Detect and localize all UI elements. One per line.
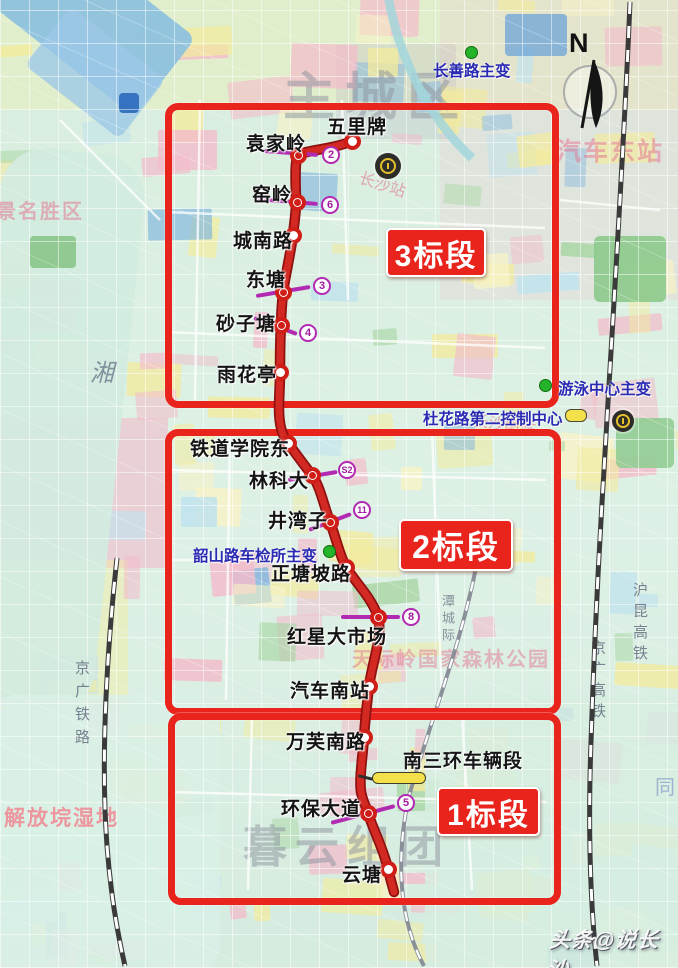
compass: N (552, 28, 636, 132)
section-tag-2: 2标段 (399, 519, 513, 571)
section-tag-3: 3标段 (386, 228, 486, 277)
compass-needle-icon (552, 28, 636, 132)
compass-n-label: N (569, 28, 589, 59)
credit-watermark: 头条@说长沙 (545, 924, 678, 968)
section-tag-1: 1标段 (437, 787, 540, 836)
section-tags-layer: 3标段2标段1标段 (0, 0, 678, 968)
map-background: 主城区暮云组团汽车东站长沙站长沙南站天际岭国家森林公园风景名胜区解放垸湿地湘同京… (0, 0, 678, 968)
